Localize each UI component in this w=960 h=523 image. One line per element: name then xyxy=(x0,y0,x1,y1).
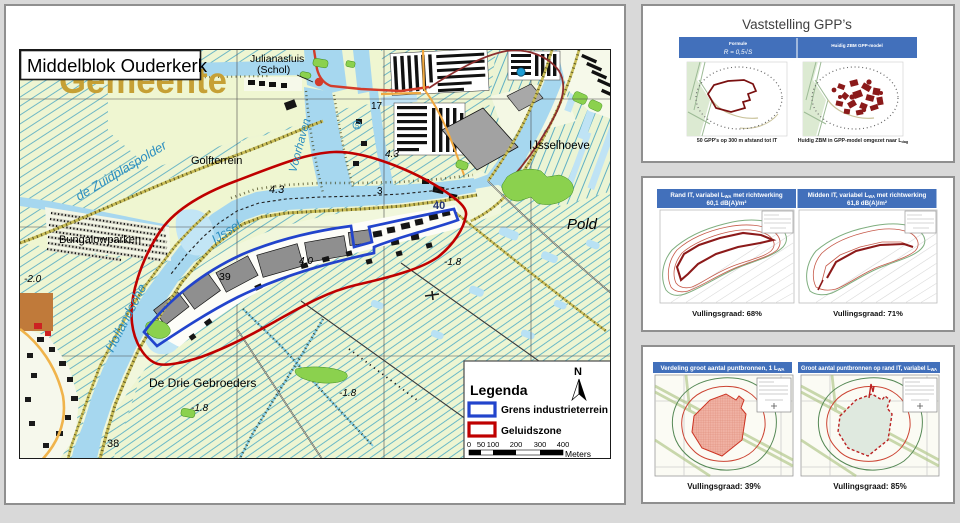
svg-text:39: 39 xyxy=(219,271,231,283)
svg-text:50: 50 xyxy=(477,440,485,449)
svg-text:S: S xyxy=(355,123,360,130)
svg-text:Geluidszone: Geluidszone xyxy=(501,426,562,437)
svg-text:60,1 dB(A)/m²: 60,1 dB(A)/m² xyxy=(707,200,747,207)
svg-text:N: N xyxy=(574,366,582,378)
svg-text:Golfterrein: Golfterrein xyxy=(191,155,242,167)
svg-text:Rand IT, variabel LWA met rich: Rand IT, variabel LWA met richtwerking xyxy=(670,192,783,199)
svg-text:-1.8: -1.8 xyxy=(191,403,209,414)
svg-text:400: 400 xyxy=(557,440,570,449)
svg-text:Legenda: Legenda xyxy=(470,382,528,398)
svg-text:38: 38 xyxy=(107,438,119,450)
svg-text:4.3: 4.3 xyxy=(385,149,399,160)
svg-text:(Schol): (Schol) xyxy=(257,64,290,76)
svg-text:Meters: Meters xyxy=(565,449,591,458)
svg-text:Vullingsgraad: 68%: Vullingsgraad: 68% xyxy=(692,309,762,318)
svg-text:-2.0: -2.0 xyxy=(24,274,42,285)
svg-text:-1.8: -1.8 xyxy=(339,388,357,399)
svg-text:-1.8: -1.8 xyxy=(444,257,462,268)
svg-text:Vullingsgraad: 71%: Vullingsgraad: 71% xyxy=(833,309,903,318)
svg-text:Middelblok Ouderkerk: Middelblok Ouderkerk xyxy=(27,55,208,76)
svg-text:Huidig ZBM GPP-model: Huidig ZBM GPP-model xyxy=(831,43,883,48)
svg-text:300: 300 xyxy=(534,440,547,449)
svg-text:IJsselhoeve: IJsselhoeve xyxy=(529,140,590,152)
svg-text:Vaststelling GPP’s: Vaststelling GPP’s xyxy=(742,17,852,32)
svg-text:Vullingsgraad: 39%: Vullingsgraad: 39% xyxy=(687,482,761,491)
svg-text:Groot aantal puntbronnen op ra: Groot aantal puntbronnen op rand IT, var… xyxy=(801,365,938,372)
svg-text:17: 17 xyxy=(371,101,383,112)
svg-text:4.0: 4.0 xyxy=(299,256,313,267)
svg-text:Huidig ZBM in GPP-model omgeze: Huidig ZBM in GPP-model omgezet naar Lda… xyxy=(798,138,909,144)
svg-text:200: 200 xyxy=(510,440,523,449)
svg-text:Pold: Pold xyxy=(567,216,598,233)
svg-text:4.3: 4.3 xyxy=(269,184,285,196)
svg-text:50 GPP’s op 300 m afstand tot: 50 GPP’s op 300 m afstand tot IT xyxy=(697,138,778,144)
svg-text:40: 40 xyxy=(433,200,445,212)
svg-text:Formule: Formule xyxy=(729,41,748,46)
svg-text:61,8 dB(A)/m²: 61,8 dB(A)/m² xyxy=(847,200,887,207)
svg-text:R = 0,5√S: R = 0,5√S xyxy=(724,48,753,56)
svg-text:De Drie Gebroeders: De Drie Gebroeders xyxy=(149,376,256,390)
svg-text:100: 100 xyxy=(487,440,500,449)
svg-text:Bungalowparken: Bungalowparken xyxy=(59,234,141,246)
svg-text:Vullingsgraad: 85%: Vullingsgraad: 85% xyxy=(833,482,907,491)
svg-text:3: 3 xyxy=(377,186,383,197)
svg-text:Midden IT, variabel LWA met ri: Midden IT, variabel LWA met richtwerking xyxy=(808,192,927,199)
svg-text:0: 0 xyxy=(467,440,471,449)
svg-text:Verdeling groot aantal puntbro: Verdeling groot aantal puntbronnen, 1 LW… xyxy=(661,365,786,372)
svg-text:Grens industrieterrein: Grens industrieterrein xyxy=(501,405,608,416)
